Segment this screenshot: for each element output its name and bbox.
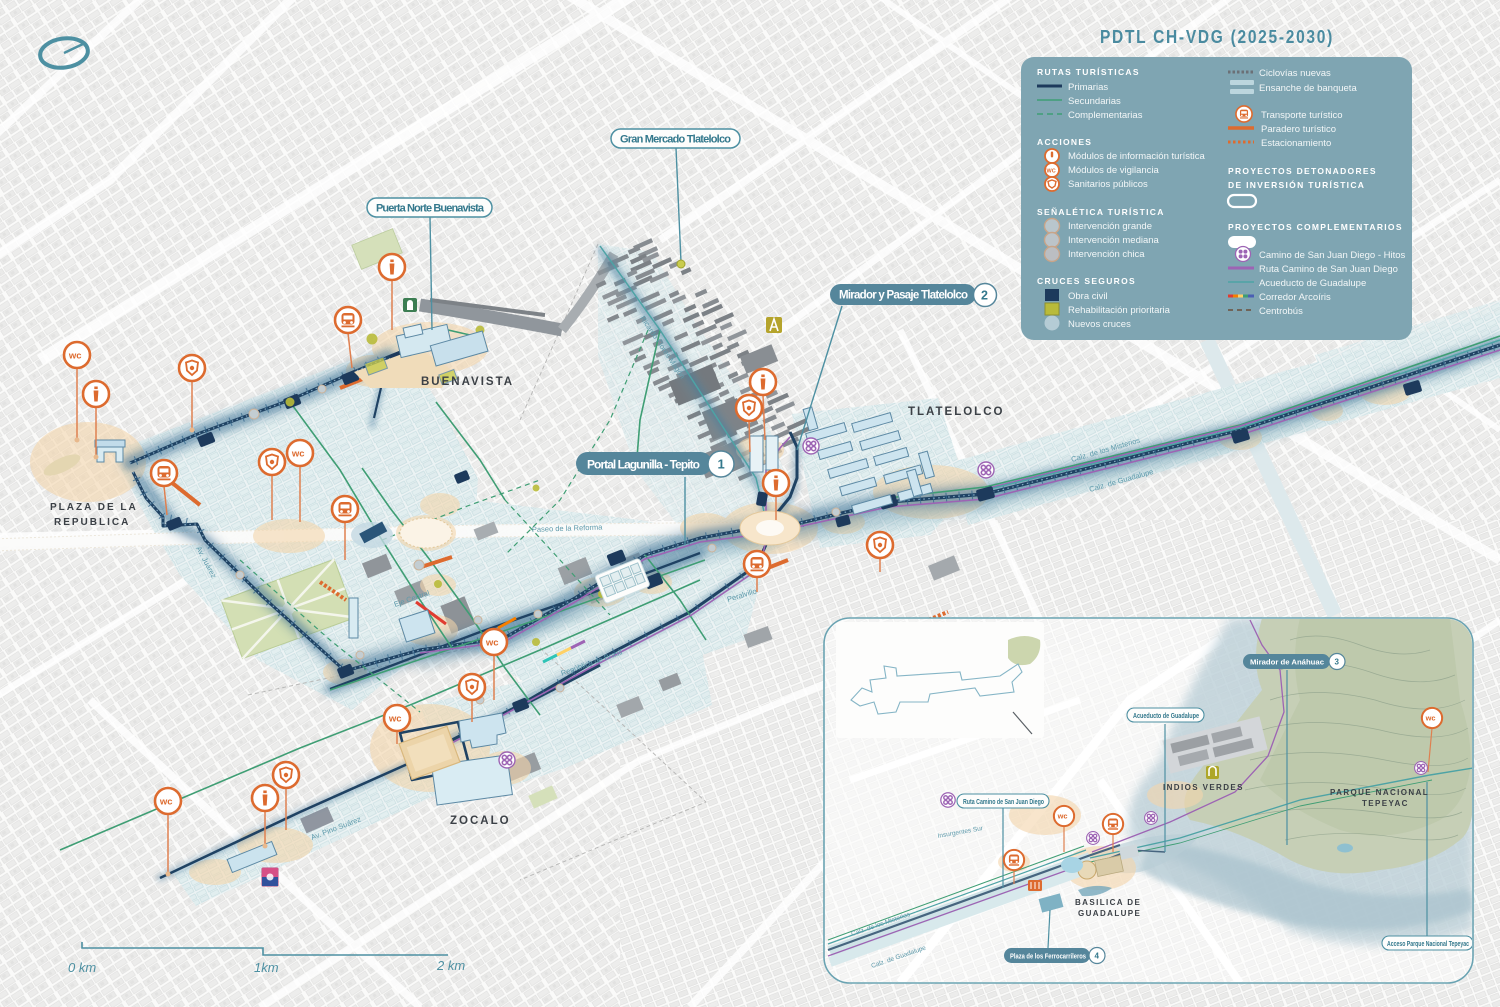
svg-text:Corredor Arcoíris: Corredor Arcoíris bbox=[1259, 292, 1331, 303]
svg-text:PROYECTOS COMPLEMENTARIOS: PROYECTOS COMPLEMENTARIOS bbox=[1228, 222, 1403, 232]
svg-text:Nuevos cruces: Nuevos cruces bbox=[1068, 319, 1131, 330]
svg-text:SEÑALÉTICA TURÍSTICA: SEÑALÉTICA TURÍSTICA bbox=[1037, 207, 1165, 217]
svg-text:4: 4 bbox=[1095, 952, 1100, 961]
svg-text:Intervención grande: Intervención grande bbox=[1068, 221, 1152, 232]
svg-text:PROYECTOS DETONADORES: PROYECTOS DETONADORES bbox=[1228, 166, 1377, 176]
svg-text:2 km: 2 km bbox=[436, 958, 465, 973]
svg-text:1km: 1km bbox=[254, 960, 279, 975]
svg-text:ZOCALO: ZOCALO bbox=[450, 815, 511, 827]
svg-text:Intervención chica: Intervención chica bbox=[1068, 249, 1145, 260]
svg-text:Portal Lagunilla - Tepito: Portal Lagunilla - Tepito bbox=[587, 458, 700, 472]
svg-text:Mirador y Pasaje Tlatelolco: Mirador y Pasaje Tlatelolco bbox=[839, 290, 968, 302]
svg-text:Ciclovías nuevas: Ciclovías nuevas bbox=[1259, 68, 1331, 79]
svg-text:Rehabilitación prioritaria: Rehabilitación prioritaria bbox=[1068, 305, 1171, 316]
svg-text:RUTAS TURÍSTICAS: RUTAS TURÍSTICAS bbox=[1037, 67, 1140, 77]
svg-text:Paradero turístico: Paradero turístico bbox=[1261, 124, 1336, 135]
svg-text:PLAZA DE LA: PLAZA DE LA bbox=[50, 502, 138, 513]
svg-text:Ruta Camino de San Juan Diego: Ruta Camino de San Juan Diego bbox=[963, 797, 1044, 806]
svg-text:Primarias: Primarias bbox=[1068, 82, 1108, 93]
svg-text:TEPEYAC: TEPEYAC bbox=[1362, 799, 1409, 808]
svg-text:Camino de San Juan Diego - Hit: Camino de San Juan Diego - Hitos bbox=[1259, 250, 1406, 261]
svg-text:Acueducto de Guadalupe: Acueducto de Guadalupe bbox=[1259, 278, 1366, 289]
svg-text:Sanitarios públicos: Sanitarios públicos bbox=[1068, 179, 1148, 190]
svg-text:Gran Mercado Tlatelolco: Gran Mercado Tlatelolco bbox=[620, 134, 731, 146]
svg-text:GUADALUPE: GUADALUPE bbox=[1078, 909, 1141, 918]
svg-text:Obra civil: Obra civil bbox=[1068, 291, 1108, 302]
svg-text:Estacionamiento: Estacionamiento bbox=[1261, 138, 1331, 149]
svg-text:PARQUE NACIONAL: PARQUE NACIONAL bbox=[1330, 788, 1429, 797]
svg-text:TLATELOLCO: TLATELOLCO bbox=[908, 406, 1004, 418]
svg-text:Secundarias: Secundarias bbox=[1068, 96, 1121, 107]
svg-text:Acceso Parque Nacional Tepeyac: Acceso Parque Nacional Tepeyac bbox=[1387, 941, 1469, 948]
svg-text:Plaza de los Ferrocarrileros: Plaza de los Ferrocarrileros bbox=[1010, 952, 1086, 961]
svg-text:ACCIONES: ACCIONES bbox=[1037, 137, 1092, 147]
svg-text:Complementarias: Complementarias bbox=[1068, 110, 1143, 121]
svg-text:DE INVERSIÓN TURÍSTICA: DE INVERSIÓN TURÍSTICA bbox=[1228, 179, 1365, 190]
svg-text:CRUCES SEGUROS: CRUCES SEGUROS bbox=[1037, 276, 1136, 286]
svg-text:2: 2 bbox=[981, 289, 988, 303]
svg-text:REPUBLICA: REPUBLICA bbox=[54, 517, 130, 528]
svg-text:Intervención mediana: Intervención mediana bbox=[1068, 235, 1160, 246]
svg-text:Módulos de información turísti: Módulos de información turística bbox=[1068, 151, 1205, 162]
svg-text:BUENAVISTA: BUENAVISTA bbox=[421, 376, 514, 388]
svg-text:Ensanche de banqueta: Ensanche de banqueta bbox=[1259, 83, 1357, 94]
svg-text:PDTL CH-VDG (2025-2030): PDTL CH-VDG (2025-2030) bbox=[1100, 27, 1334, 47]
svg-text:0 km: 0 km bbox=[68, 960, 96, 975]
svg-text:INDIOS VERDES: INDIOS VERDES bbox=[1163, 783, 1244, 792]
svg-text:Mirador de Anáhuac: Mirador de Anáhuac bbox=[1250, 658, 1324, 667]
svg-text:BASILICA DE: BASILICA DE bbox=[1075, 898, 1141, 907]
svg-text:Centrobús: Centrobús bbox=[1259, 306, 1303, 317]
svg-text:WC: WC bbox=[1047, 169, 1056, 175]
svg-text:Transporte turístico: Transporte turístico bbox=[1261, 110, 1342, 121]
svg-text:3: 3 bbox=[1335, 658, 1340, 667]
svg-text:Acueducto de Guadalupe: Acueducto de Guadalupe bbox=[1133, 711, 1199, 720]
svg-text:1: 1 bbox=[718, 457, 725, 472]
svg-text:Ruta Camino de San Juan Diego: Ruta Camino de San Juan Diego bbox=[1259, 264, 1398, 275]
svg-text:Módulos de vigilancia: Módulos de vigilancia bbox=[1068, 165, 1160, 176]
svg-text:Puerta Norte Buenavista: Puerta Norte Buenavista bbox=[376, 203, 485, 215]
